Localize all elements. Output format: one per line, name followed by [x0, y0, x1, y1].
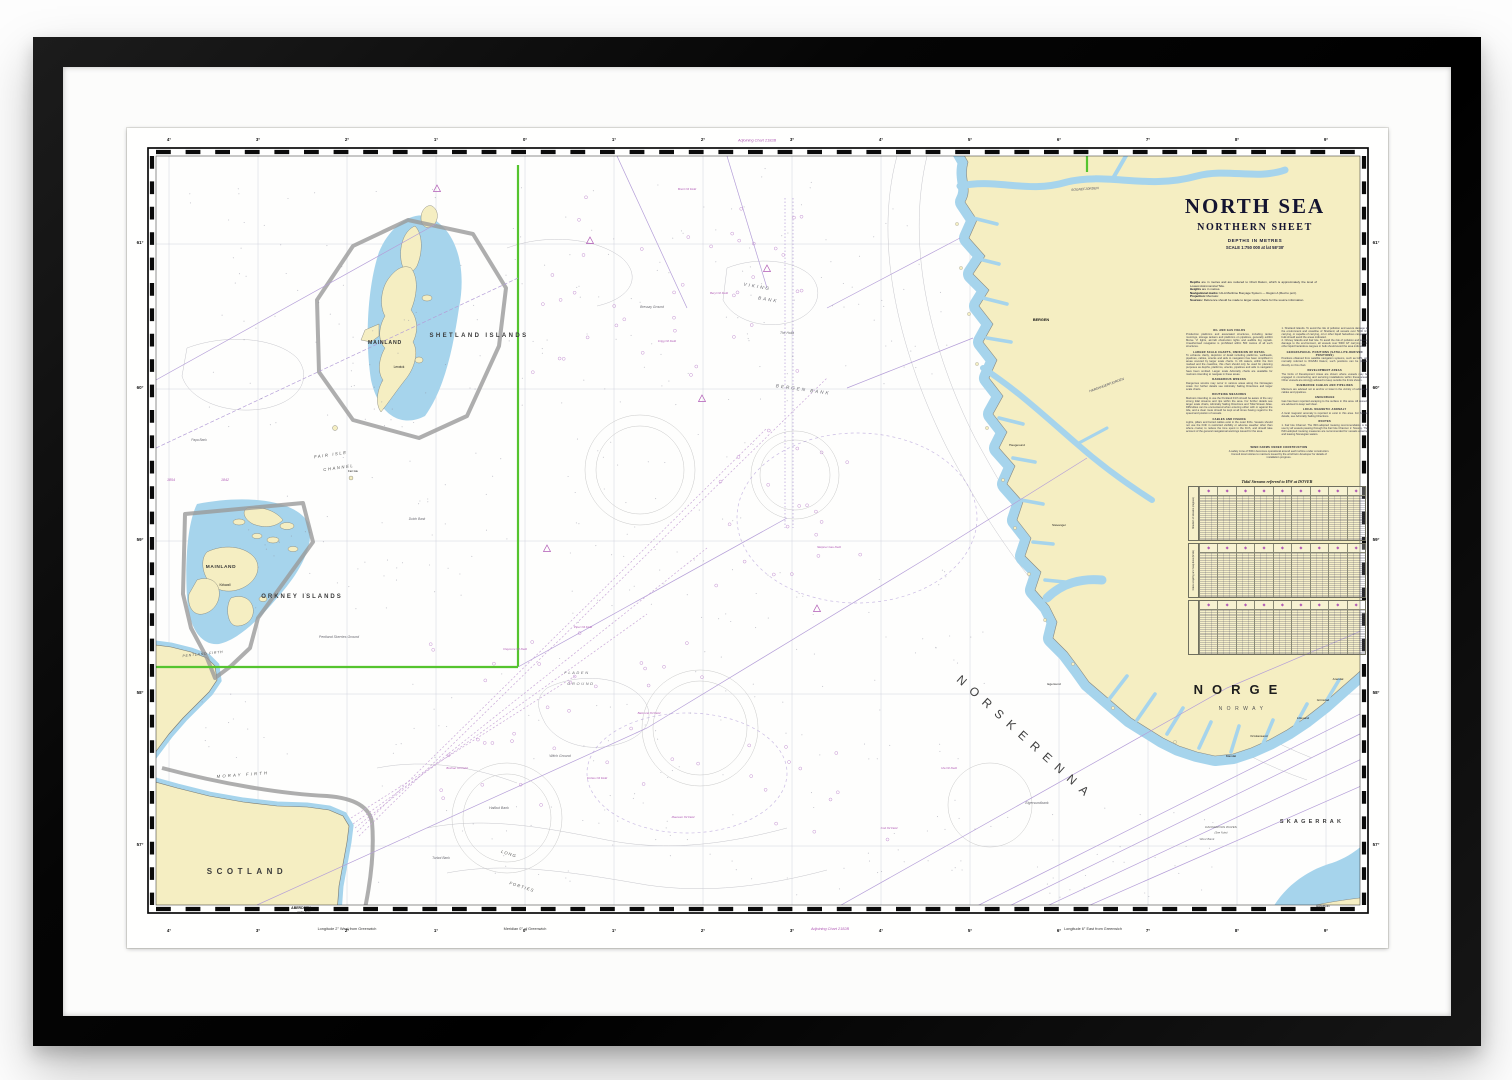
tidal-diamond-icon: ◆ — [1207, 603, 1210, 607]
longitude-label: 1° — [434, 928, 439, 933]
chart-title-block: NORTH SEA NORTHERN SHEET DEPTHS IN METRE… — [1175, 194, 1335, 250]
tidal-diamond-icon: ◆ — [1355, 603, 1358, 607]
tidal-diamond-icon: ◆ — [1226, 603, 1229, 607]
map-label: Piper Oil Field — [574, 625, 593, 629]
margin-note: Adjoining Chart 2182B — [737, 139, 776, 143]
longitude-label: 5° — [968, 137, 973, 142]
map-label: FLADEN — [564, 670, 589, 675]
longitude-label: 6° — [1057, 928, 1062, 933]
latitude-label: 61° — [137, 240, 144, 245]
chart-notes: OIL AND GAS FIELDSProduction platforms a… — [1186, 327, 1368, 436]
map-label: BERGEN — [1033, 318, 1050, 322]
tidal-diamond-icon: ◆ — [1262, 603, 1265, 607]
longitude-label: 2° — [345, 137, 350, 142]
tidal-diamond-icon: ◆ — [1281, 603, 1284, 607]
note-section: CABLES AND FISHINGLights, pillars and bu… — [1186, 418, 1273, 434]
tidal-streams-table: Tidal Streams referred to HW at DOVER Di… — [1188, 479, 1366, 657]
scale-line: SCALE 1:750 000 at lat 58°30' — [1175, 245, 1335, 250]
longitude-label: 3° — [256, 137, 261, 142]
tidal-band: Rates at spring and neap tides (knots) ◆… — [1188, 543, 1366, 598]
latitude-label: 60° — [137, 385, 144, 390]
map-label: (See Note) — [1215, 831, 1228, 835]
map-label: 1854 — [167, 478, 175, 482]
map-label: Stavanger — [1052, 523, 1066, 527]
tidal-diamond-icon: ◆ — [1262, 489, 1265, 493]
longitude-label: 6° — [1057, 137, 1062, 142]
map-label: Haugesund — [1009, 443, 1025, 447]
map-label: SHETLAND ISLANDS — [429, 333, 528, 339]
tidal-side-label: Direction of streams (degrees) — [1189, 487, 1199, 540]
mat-board: SHETLAND ISLANDSMAINLANDLerwickORKNEY IS… — [63, 67, 1451, 1016]
map-label: Forties Oil Field — [587, 776, 608, 780]
notes-column-2: 1. Shetland Islands. To avoid the risk o… — [1282, 327, 1369, 436]
note-section: DANGEROUS WRECKSDangerous wrecks may occ… — [1186, 378, 1273, 391]
note-section: LOCAL MAGNETIC ANOMALYA local magnetic a… — [1282, 408, 1369, 418]
longitude-label: 8° — [1235, 137, 1240, 142]
longitude-label: 1° — [434, 137, 439, 142]
tidal-diamond-icon: ◆ — [1244, 546, 1247, 550]
tidal-band: ◆ ◆ ◆ ◆ ◆ ◆ ◆ ◆ ◆ — [1188, 600, 1366, 655]
longitude-label: 3° — [790, 928, 795, 933]
longitude-label: 4° — [167, 928, 172, 933]
map-label: 1842 — [221, 478, 229, 482]
map-label: NORGE — [1194, 682, 1287, 697]
tidal-diamond-icon: ◆ — [1299, 603, 1302, 607]
map-label: Claymore Oil Field — [503, 647, 527, 651]
map-label: Hanstholm — [1316, 904, 1330, 908]
tidal-diamond-icon: ◆ — [1281, 546, 1284, 550]
map-label: Witch Ground — [549, 754, 571, 758]
map-label: Turbot Bank — [432, 856, 450, 860]
tidal-diamond-icon: ◆ — [1281, 489, 1284, 493]
latitude-label: 57° — [137, 842, 144, 847]
tidal-diamond-icon: ◆ — [1244, 489, 1247, 493]
note-section: 2. Orkney Islands and Fair Isle. To avoi… — [1282, 339, 1369, 348]
tidal-diamond-icon: ◆ — [1336, 489, 1339, 493]
tidal-diamond-icon: ◆ — [1355, 489, 1358, 493]
picture-frame: SHETLAND ISLANDSMAINLANDLerwickORKNEY IS… — [33, 37, 1481, 1046]
map-label: Fair Isle — [348, 469, 358, 473]
tidal-diamond-icon: ◆ — [1318, 603, 1321, 607]
map-label: The Holla — [780, 331, 794, 335]
tidal-diamond-icon: ◆ — [1207, 489, 1210, 493]
map-label: Buchan Oil Field — [446, 766, 468, 770]
latitude-label: 59° — [1373, 537, 1380, 542]
map-label: Sleipner Gas Field — [817, 545, 841, 549]
longitude-label: 7° — [1146, 928, 1151, 933]
depths-line: DEPTHS IN METRES — [1175, 238, 1335, 243]
longitude-label: 1° — [612, 928, 617, 933]
latitude-label: 59° — [137, 537, 144, 542]
map-label: ABERDEEN — [291, 906, 311, 910]
map-label: Balmoral Oil Field — [638, 711, 661, 715]
margin-note: Adjoining Chart 2182B — [810, 927, 849, 931]
map-label: Eigersundbank — [1025, 801, 1049, 805]
map-label: Halibut Bank — [489, 806, 509, 810]
note-section: ANCHORAGEGas has been reported escaping … — [1282, 396, 1369, 406]
latitude-label: 61° — [1373, 240, 1380, 245]
latitude-label: 60° — [1373, 385, 1380, 390]
margin-note: Longitude 2° West from Greenwich — [318, 927, 377, 931]
tidal-diamond-icon: ◆ — [1355, 546, 1358, 550]
chart-paper: SHETLAND ISLANDSMAINLANDLerwickORKNEY IS… — [127, 128, 1388, 948]
longitude-label: 8° — [1235, 928, 1240, 933]
tidal-table-title: Tidal Streams referred to HW at DOVER — [1188, 479, 1366, 484]
map-label: Brent Oil Field — [678, 187, 697, 191]
map-label: Papa Bank — [191, 438, 207, 442]
note-section: DEVELOPMENT AREASThe limits of Developme… — [1282, 369, 1369, 382]
tidal-diamond-icon: ◆ — [1262, 546, 1265, 550]
note-section: SUBMARINE CABLES AND PIPELINESMariners a… — [1282, 384, 1369, 394]
longitude-label: 9° — [1324, 137, 1329, 142]
longitude-label: 3° — [256, 928, 261, 933]
map-label: Frigg Oil Field — [658, 339, 676, 343]
intro-line: Sources: Reference should be made to lar… — [1190, 299, 1317, 303]
map-label: Lerwick — [394, 365, 405, 369]
tidal-diamond-icon: ◆ — [1299, 546, 1302, 550]
tidal-diamond-icon: ◆ — [1226, 546, 1229, 550]
photo-background: SHETLAND ISLANDSMAINLANDLerwickORKNEY IS… — [0, 0, 1512, 1080]
longitude-label: 0° — [523, 137, 528, 142]
tidal-diamond-icon: ◆ — [1299, 489, 1302, 493]
tidal-diamond-icon: ◆ — [1336, 603, 1339, 607]
longitude-label: 4° — [167, 137, 172, 142]
tidal-diamond-icon: ◆ — [1336, 546, 1339, 550]
wind-farm-note: WIND FARMS UNDER CONSTRUCTION A safety z… — [1225, 446, 1333, 459]
note-section: 1. Shetland Islands. To avoid the risk o… — [1282, 327, 1369, 339]
map-label: Girdle Ness — [297, 911, 311, 914]
map-label: Grimstad — [1317, 698, 1330, 702]
map-label: Kristiansand — [1250, 734, 1267, 738]
chart-intro-notes: Depths are in metres and are reduced to … — [1190, 281, 1317, 302]
latitude-label: 58° — [137, 690, 144, 695]
map-label: Bressay Ground — [640, 305, 664, 309]
map-label: GROUND — [567, 681, 594, 686]
longitude-label: 2° — [701, 137, 706, 142]
map-label: DANGEROUS WAVES — [1205, 825, 1238, 829]
map-label: Dutch Bank — [409, 517, 426, 521]
map-label: Kirkwall — [220, 583, 231, 587]
tidal-diamond-icon: ◆ — [1244, 603, 1247, 607]
note-section: LARGER SCALE CHARTS, OMISSION OF DETAILT… — [1186, 351, 1273, 376]
note-section: ROUTES1. Fair Isle Channel. The IMO-adop… — [1282, 420, 1369, 436]
latitude-label: 57° — [1373, 842, 1380, 847]
margin-note: Meridian 0° of Greenwich — [504, 927, 547, 931]
map-label: Beryl Oil Field — [710, 291, 728, 295]
map-label: Pentland Skerries Ground — [319, 635, 360, 639]
chart-subtitle: NORTHERN SHEET — [1175, 222, 1335, 233]
map-label: NORWAY — [1219, 706, 1268, 712]
note-section: OIL AND GAS FIELDSProduction platforms a… — [1186, 329, 1273, 348]
note-section: GEOGRAPHICAL POSITIONS (SATELLITE-DERIVE… — [1282, 351, 1369, 367]
map-label: MAINLAND — [368, 340, 402, 346]
tidal-band: Direction of streams (degrees) ◆ ◆ ◆ ◆ ◆… — [1188, 486, 1366, 541]
chart-title: NORTH SEA — [1175, 194, 1335, 219]
map-label: ORKNEY ISLANDS — [261, 594, 343, 600]
map-label: Lillesand — [1297, 716, 1309, 720]
longitude-label: 9° — [1324, 928, 1329, 933]
map-label: SKAGERRAK — [1280, 819, 1344, 825]
map-label: Mandal — [1226, 754, 1236, 758]
note-section: ROUTEING MEASURESMariners intending to u… — [1186, 393, 1273, 415]
longitude-label: 2° — [701, 928, 706, 933]
map-label: West Bank — [1200, 837, 1215, 841]
map-label: Maureen Oil Field — [672, 815, 695, 819]
longitude-label: 5° — [968, 928, 973, 933]
map-label: MAINLAND — [206, 564, 236, 570]
tidal-diamond-icon: ◆ — [1226, 489, 1229, 493]
tidal-side-label — [1189, 601, 1199, 654]
tidal-diamond-icon: ◆ — [1318, 546, 1321, 550]
map-label: SCOTLAND — [207, 867, 287, 876]
tidal-diamond-icon: ◆ — [1318, 489, 1321, 493]
longitude-label: 3° — [790, 137, 795, 142]
tidal-diamond-icon: ◆ — [1207, 546, 1210, 550]
latitude-label: 58° — [1373, 690, 1380, 695]
map-label: Egersund — [1047, 682, 1061, 686]
longitude-label: 4° — [879, 137, 884, 142]
longitude-label: 7° — [1146, 137, 1151, 142]
notes-column-1: OIL AND GAS FIELDSProduction platforms a… — [1186, 327, 1273, 436]
longitude-label: 1° — [612, 137, 617, 142]
longitude-label: 4° — [879, 928, 884, 933]
map-label: Cod Oil Field — [881, 826, 898, 830]
tidal-side-label: Rates at spring and neap tides (knots) — [1189, 544, 1199, 597]
map-label: Ula Oil Field — [941, 766, 957, 770]
map-label: Arendal — [1333, 677, 1344, 681]
margin-note: Longitude 6° East from Greenwich — [1064, 927, 1122, 931]
